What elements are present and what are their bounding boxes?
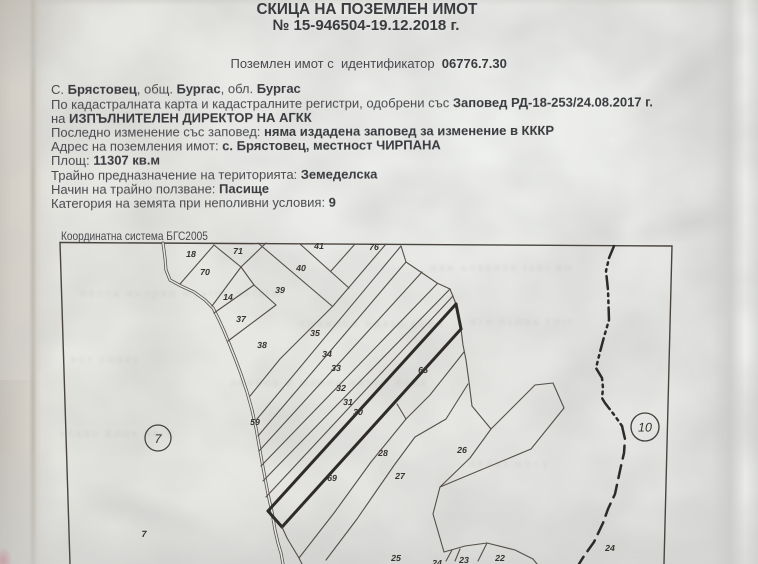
svg-text:39: 39 — [275, 285, 285, 295]
svg-text:26: 26 — [456, 445, 467, 455]
svg-text:31: 31 — [343, 397, 353, 407]
svg-text:22: 22 — [494, 553, 505, 563]
svg-text:33: 33 — [331, 363, 341, 373]
svg-text:76: 76 — [369, 242, 379, 252]
svg-text:70: 70 — [200, 267, 210, 277]
svg-text:7: 7 — [155, 432, 163, 446]
svg-text:24: 24 — [604, 543, 615, 553]
svg-text:18: 18 — [186, 249, 196, 259]
svg-text:34: 34 — [322, 349, 332, 359]
svg-text:10: 10 — [638, 421, 652, 435]
svg-text:69: 69 — [327, 473, 337, 483]
svg-text:40: 40 — [295, 263, 306, 273]
svg-text:30: 30 — [353, 407, 363, 417]
svg-text:14: 14 — [223, 292, 233, 302]
svg-text:27: 27 — [394, 471, 406, 481]
svg-text:23: 23 — [458, 555, 469, 564]
svg-text:28: 28 — [377, 448, 388, 458]
svg-text:25: 25 — [390, 553, 401, 563]
svg-text:65: 65 — [418, 365, 428, 375]
svg-text:37: 37 — [236, 314, 247, 324]
svg-text:7: 7 — [141, 529, 147, 539]
svg-text:41: 41 — [313, 241, 324, 251]
svg-text:59: 59 — [250, 417, 260, 427]
svg-text:32: 32 — [336, 383, 346, 393]
svg-text:38: 38 — [257, 340, 267, 350]
svg-text:71: 71 — [233, 246, 243, 256]
svg-text:35: 35 — [310, 328, 320, 338]
svg-text:24: 24 — [431, 558, 442, 564]
